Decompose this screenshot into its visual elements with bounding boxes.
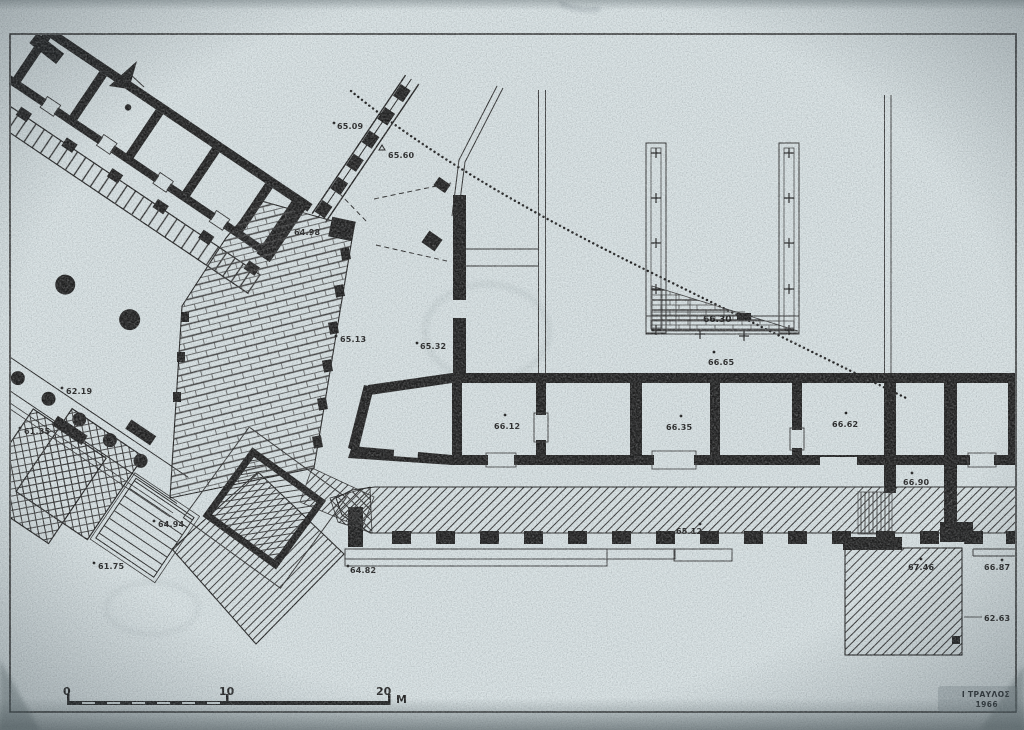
scanned-plan-sheet: 65.09 65.60 64.98 65.13 65.32 66.12 66.3… xyxy=(0,0,1024,730)
vignette xyxy=(0,0,1024,730)
bottom-shadow xyxy=(0,698,1024,730)
top-shadow xyxy=(0,0,1024,10)
floor-plan-drawing: 65.09 65.60 64.98 65.13 65.32 66.12 66.3… xyxy=(0,0,1024,730)
